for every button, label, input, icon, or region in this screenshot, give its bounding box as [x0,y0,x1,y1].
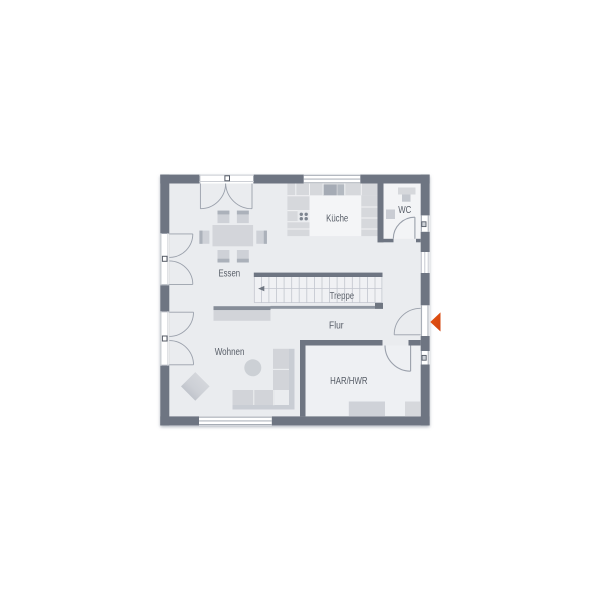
svg-text:HAR/HWR: HAR/HWR [330,375,368,386]
svg-text:Flur: Flur [329,319,344,331]
svg-text:Essen: Essen [218,268,240,279]
svg-text:Treppe: Treppe [330,290,354,301]
svg-text:Küche: Küche [326,213,348,224]
svg-text:Wohnen: Wohnen [215,346,245,357]
svg-text:WC: WC [398,204,411,215]
